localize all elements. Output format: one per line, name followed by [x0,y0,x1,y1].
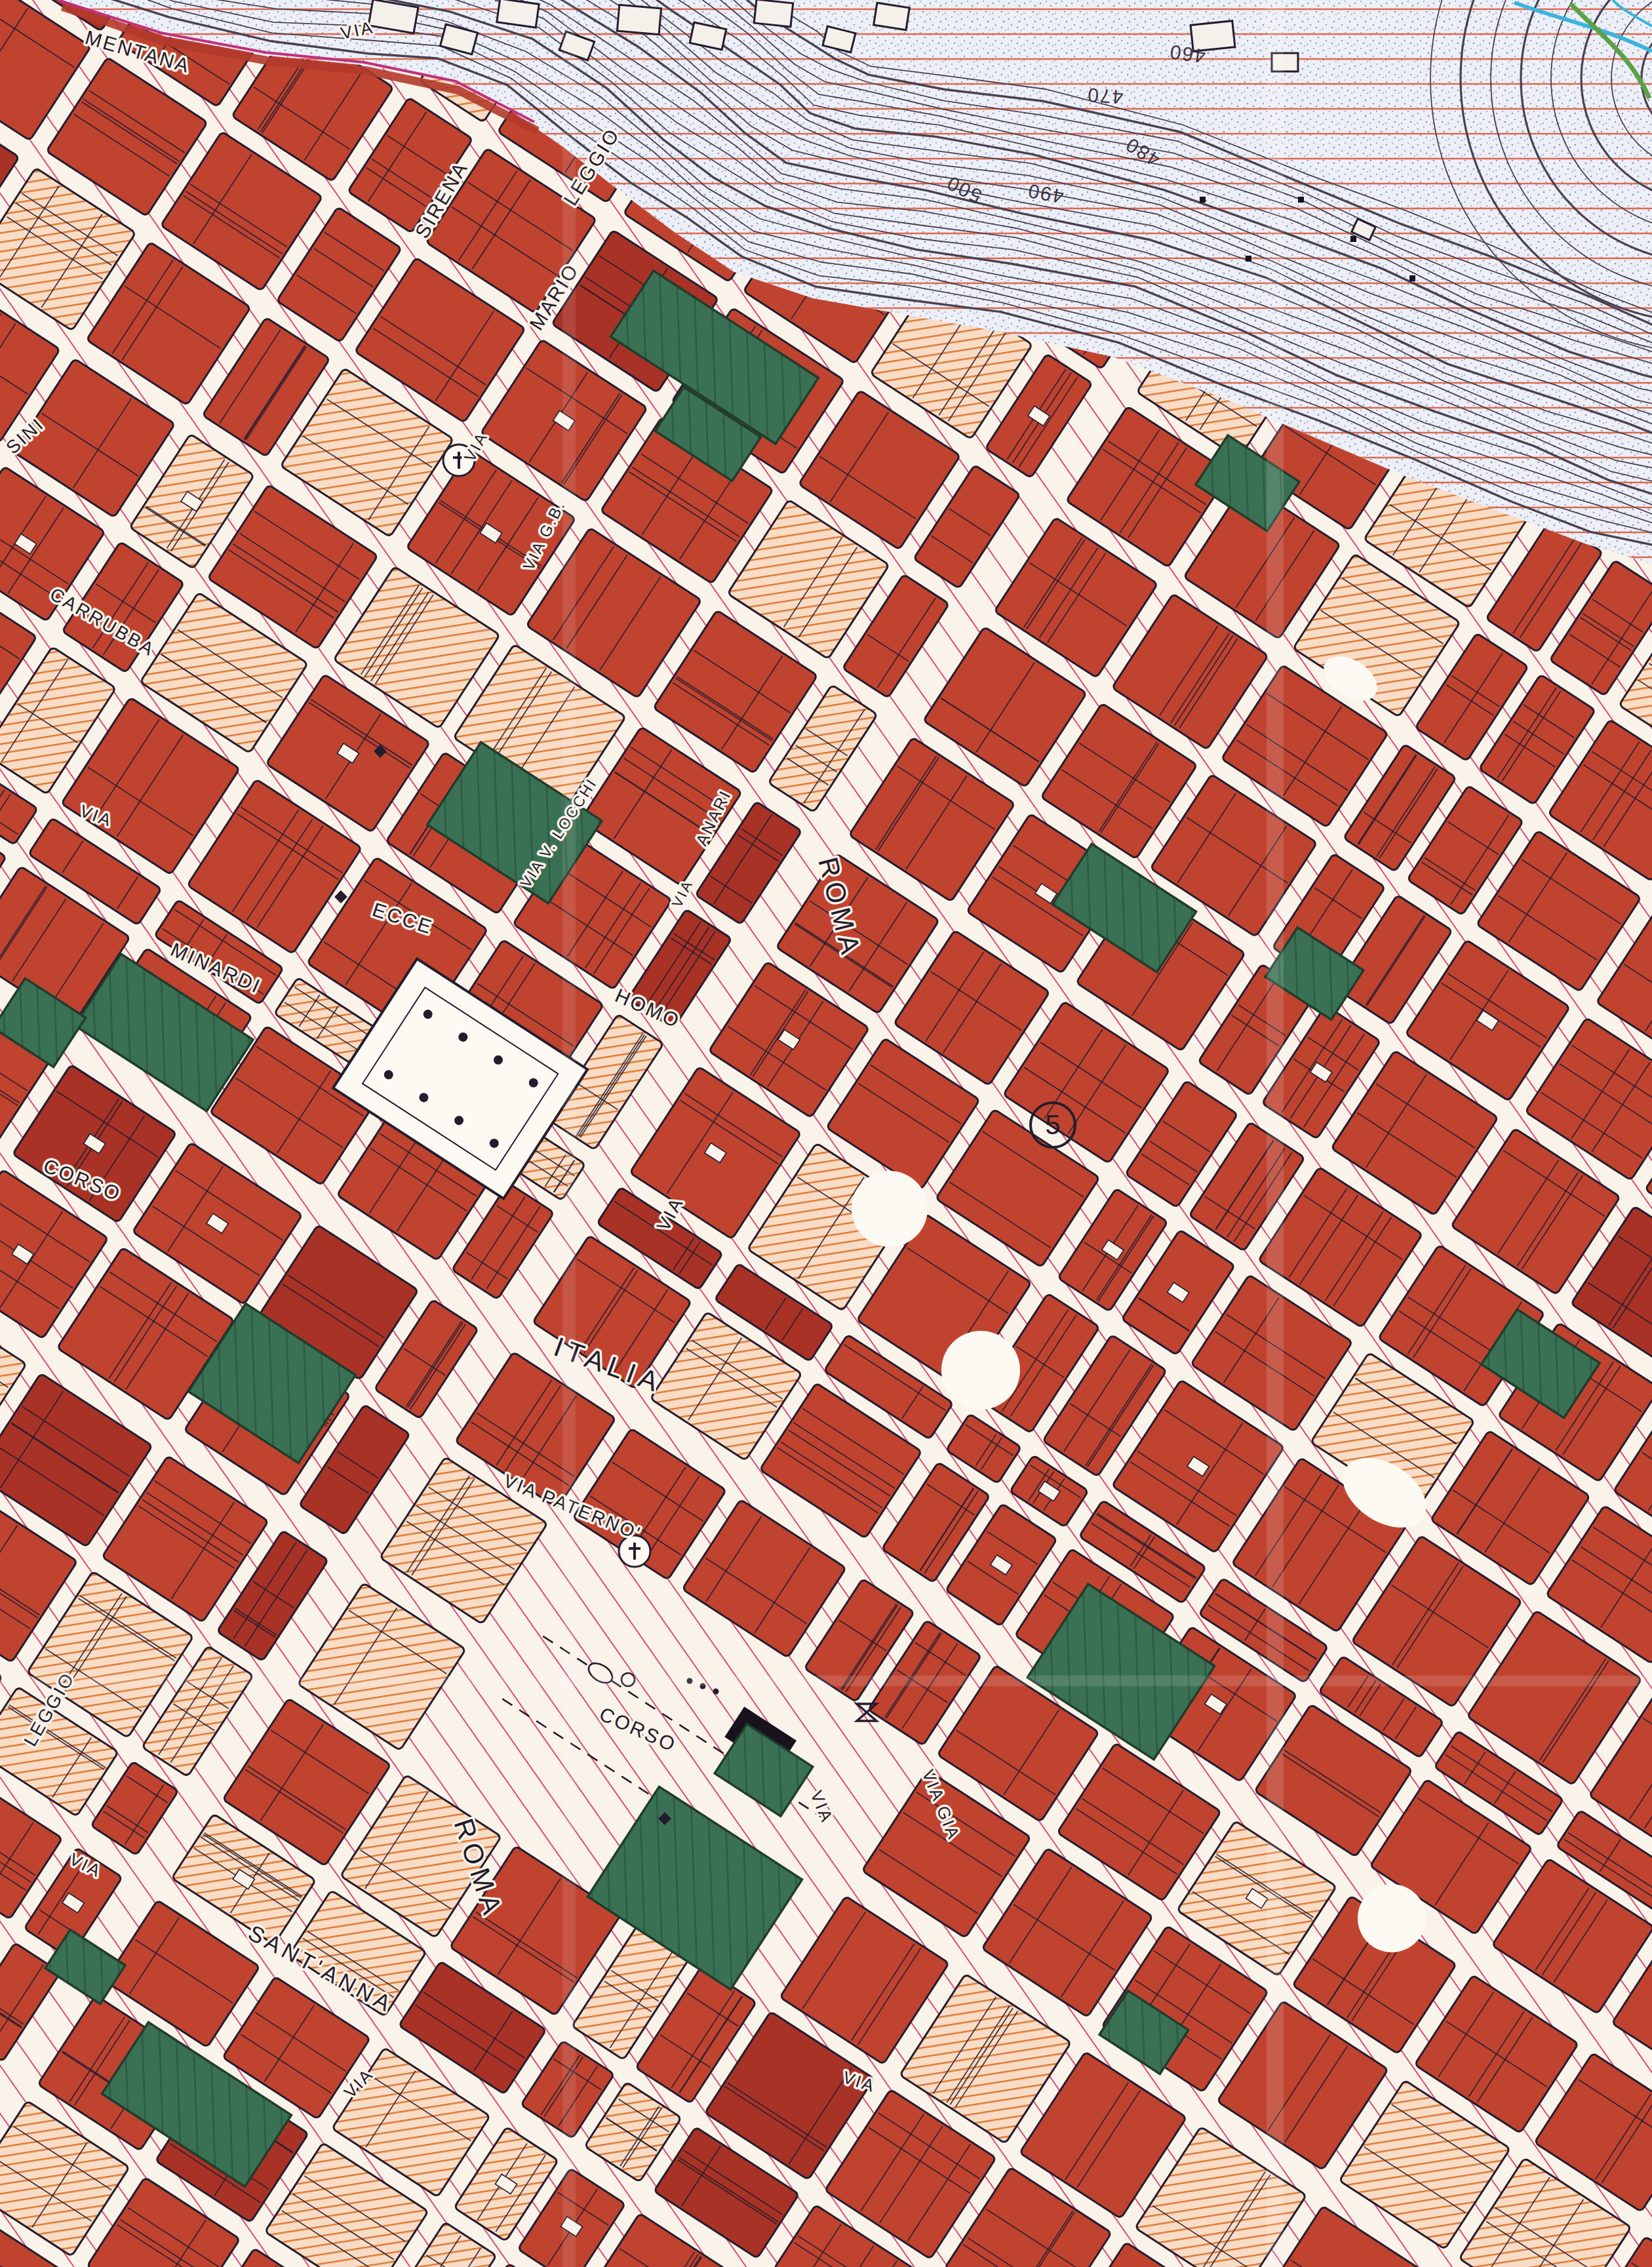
svg-text:5: 5 [1045,1109,1060,1140]
piazza-circle [1358,1884,1426,1952]
city-plan-map: 5MENTANAVIALEGGIOSIRENAMARIOVIAVIA G.B.S… [0,0,1652,2267]
elevation-label: 470 [1086,84,1124,108]
paper-crease-horizontal [0,1676,1652,1686]
piazza-circle [941,1331,1020,1409]
piazza-circle [852,1171,928,1247]
paper-crease-vertical [1267,0,1284,2267]
